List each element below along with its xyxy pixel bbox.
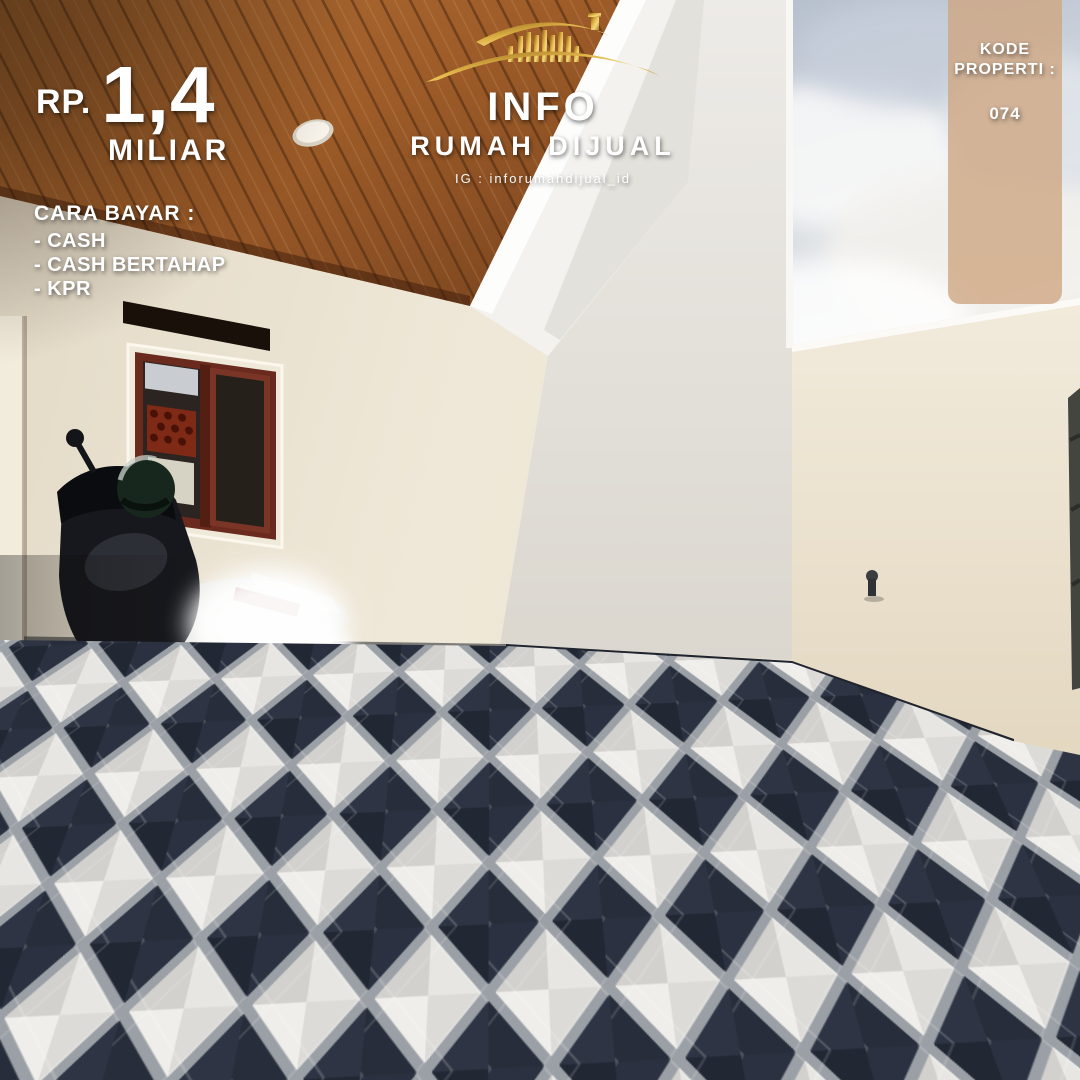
price-unit: MILIAR — [108, 134, 229, 168]
bucket — [26, 660, 72, 714]
property-flyer: RP. 1,4 MILIAR CARA BAYAR : - CASH - CAS… — [0, 0, 1080, 1080]
payment-option: - KPR — [34, 277, 226, 301]
gold-house-roof-icon — [418, 2, 668, 88]
brand-logo: INFO RUMAH DIJUAL IG : inforumahdijual_i… — [333, 2, 753, 186]
brand-instagram: IG : inforumahdijual_id — [333, 171, 753, 186]
contact-phone: +62 821 91111 711 — [728, 972, 1080, 1060]
wall-vent — [123, 301, 270, 351]
payment-options: CARA BAYAR : - CASH - CASH BERTAHAP - KP… — [34, 202, 226, 301]
property-code-label-2: PROPERTI : — [948, 60, 1062, 80]
location-district: CIRACAS — [285, 778, 801, 838]
price-amount: 1,4 — [101, 58, 215, 132]
payment-option: - CASH BERTAHAP — [34, 253, 226, 277]
green-cloth — [0, 946, 104, 1049]
left-door-edge — [0, 316, 27, 646]
contact-text: INFORMASI DAN SURVEY : +62 821 91111 711 — [728, 948, 1080, 1060]
price-currency: RP. — [36, 83, 91, 122]
payment-option: - CASH — [34, 229, 226, 253]
location-block: CIRACAS JAKARTA TIMUR — [285, 778, 801, 917]
wall-corner-trim — [786, 0, 793, 348]
property-code-panel: KODE PROPERTI : 074 — [948, 0, 1062, 304]
property-code-label-1: KODE — [948, 40, 1062, 60]
location-city: JAKARTA TIMUR — [285, 855, 801, 917]
property-code-value: 074 — [948, 104, 1062, 124]
whatsapp-icon — [668, 975, 726, 1033]
window-center-stile — [200, 364, 211, 528]
contact-banner: INFORMASI DAN SURVEY : +62 821 91111 711 — [656, 958, 1080, 1050]
brand-tagline: RUMAH DIJUAL — [333, 131, 753, 162]
window-right-pane — [213, 371, 267, 531]
payment-heading: CARA BAYAR : — [34, 202, 226, 226]
mirror — [66, 429, 84, 447]
brand-name: INFO — [333, 87, 753, 127]
glare-highlight — [188, 567, 353, 681]
price-block: RP. 1,4 MILIAR — [36, 58, 229, 168]
